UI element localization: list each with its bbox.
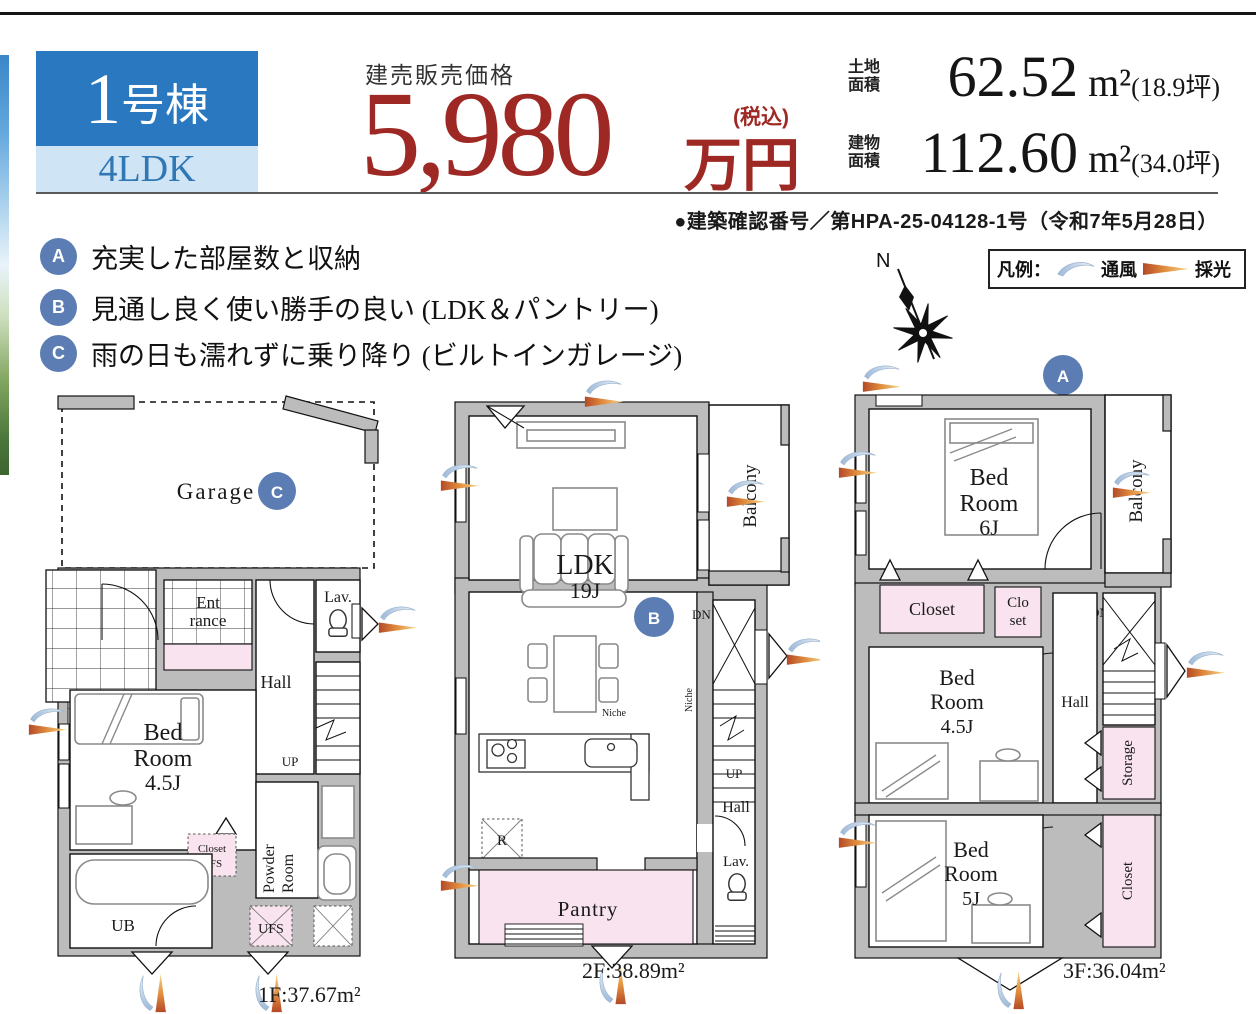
svg-text:Storage: Storage xyxy=(1120,740,1136,786)
garage-label: Garage xyxy=(177,479,255,504)
area-label-2f: 2F:38.89m² xyxy=(582,958,685,983)
marker-c: C xyxy=(258,472,296,510)
building-area-unit: m² xyxy=(1088,135,1131,182)
svg-text:Ent: Ent xyxy=(196,593,220,612)
building-area-tsubo: (34.0坪) xyxy=(1131,143,1220,180)
feature-c-text: 雨の日も濡れずに乗り降り (ビルトインガレージ) xyxy=(91,334,682,373)
svg-text:5J: 5J xyxy=(962,888,980,910)
bath-ub: UB xyxy=(70,854,212,948)
confirmation-number: ●建築確認番号／第HPA-25-04128-1号（令和7年5月28日） xyxy=(674,205,1218,234)
toilet-icon xyxy=(728,874,746,900)
tv-board xyxy=(517,422,625,448)
svg-text:A: A xyxy=(1057,367,1069,386)
feature-c-marker: C xyxy=(40,335,77,372)
floorplan-2f: Balcony LDK 19J B DN xyxy=(438,378,820,1012)
building-number-suffix: 号棟 xyxy=(121,84,209,128)
building-area-row: 建物 面積 112.60 m² (34.0坪) xyxy=(848,124,1220,182)
svg-text:Room: Room xyxy=(944,861,998,886)
svg-text:Lav.: Lav. xyxy=(723,854,749,870)
entry-door-mark xyxy=(248,952,288,974)
building-area-value: 112.60 xyxy=(888,124,1078,182)
svg-text:Room: Room xyxy=(134,746,193,772)
header-divider xyxy=(36,192,1218,194)
svg-text:Room: Room xyxy=(280,853,297,893)
svg-text:6J: 6J xyxy=(979,515,999,540)
svg-text:UFS: UFS xyxy=(258,922,284,937)
svg-text:UP: UP xyxy=(282,754,299,769)
svg-text:Bed: Bed xyxy=(953,837,988,862)
lavatory-1f: Lav. xyxy=(316,580,378,652)
svg-text:set: set xyxy=(1010,613,1027,629)
hall-1f: Hall xyxy=(256,580,314,774)
top-rule xyxy=(0,12,1256,15)
svg-text:Closet: Closet xyxy=(198,843,226,855)
wind-light-icon xyxy=(379,607,417,633)
wind-light-icon xyxy=(140,974,166,1012)
svg-text:Bed: Bed xyxy=(144,720,183,746)
feature-b-marker: B xyxy=(40,289,77,326)
floorplan-1f: Garage C Ent rance Hall Lav. xyxy=(28,388,420,1014)
svg-text:Balcony: Balcony xyxy=(740,464,761,528)
svg-text:C: C xyxy=(271,483,283,502)
svg-text:Room: Room xyxy=(960,491,1019,517)
bedroom-5j: Bed Room 5J xyxy=(869,815,1043,947)
svg-text:Closet: Closet xyxy=(909,599,955,619)
svg-text:UB: UB xyxy=(111,916,135,935)
ufs-box: UFS xyxy=(250,906,292,946)
plan-type-badge: 4LDK xyxy=(36,146,258,192)
refrigerator-space: R xyxy=(482,819,522,859)
dn-label: DN xyxy=(692,607,711,622)
marker-b: B xyxy=(634,597,674,637)
wind-light-icon xyxy=(863,366,901,392)
pantry: Pantry xyxy=(469,858,697,946)
svg-text:rance: rance xyxy=(190,611,227,630)
feature-a-text: 充実した部屋数と収納 xyxy=(91,237,361,276)
land-area-value: 62.52 xyxy=(888,48,1078,106)
land-area-tsubo: (18.9坪) xyxy=(1131,67,1220,104)
marker-a: A xyxy=(1043,355,1083,395)
wind-icon xyxy=(1056,260,1096,278)
svg-text:Hall: Hall xyxy=(722,799,750,816)
left-photo-sliver xyxy=(0,55,9,475)
svg-text:4.5J: 4.5J xyxy=(941,716,974,738)
building-area-label: 建物 面積 xyxy=(848,135,880,171)
area-label-1f: 1F:37.67m² xyxy=(258,982,361,1007)
svg-text:Hall: Hall xyxy=(261,672,292,692)
building-number: 1 xyxy=(85,63,121,135)
land-area-label: 土地 面積 xyxy=(848,59,880,95)
wind-light-icon xyxy=(1187,652,1225,678)
svg-text:B: B xyxy=(648,609,660,628)
low-table xyxy=(553,488,617,530)
building-number-badge: 1 号棟 xyxy=(36,51,258,146)
price-value: 5,980 xyxy=(360,74,610,196)
svg-text:Clo: Clo xyxy=(1007,595,1029,611)
compass-north-label: N xyxy=(876,250,890,272)
svg-text:Powder: Powder xyxy=(261,843,278,893)
legend-title: 凡例： xyxy=(997,256,1051,282)
svg-text:Room: Room xyxy=(930,689,984,714)
svg-text:4.5J: 4.5J xyxy=(145,770,182,795)
svg-text:Bed: Bed xyxy=(939,665,974,690)
garage: Garage xyxy=(58,396,378,568)
balcony-3f: Balcony xyxy=(1105,395,1171,587)
entry-door-mark xyxy=(132,952,172,974)
svg-text:Closet: Closet xyxy=(1120,861,1136,900)
bedroom-1f: Bed Room 4.5J xyxy=(70,690,256,850)
niche-label: Niche xyxy=(602,708,626,719)
legend-box: 凡例： 通風 採光 xyxy=(988,249,1246,289)
ldk-label: LDK xyxy=(556,550,614,581)
svg-text:Lav.: Lav. xyxy=(324,589,352,606)
svg-text:R: R xyxy=(497,833,507,849)
bedroom-45j: Bed Room 4.5J xyxy=(869,647,1043,803)
feature-a: A 充実した部屋数と収納 xyxy=(40,237,361,275)
balcony-2f: Balcony xyxy=(709,405,789,585)
price-unit: 万円 xyxy=(684,118,800,202)
area-label-3f: 3F:36.04m² xyxy=(1063,958,1166,983)
feature-c: C 雨の日も濡れずに乗り降り (ビルトインガレージ) xyxy=(40,334,682,372)
wind-light-icon xyxy=(787,639,820,665)
ldk-size-label: 19J xyxy=(570,578,601,603)
feature-b-text: 見通し良く使い勝手の良い (LDK＆パントリー) xyxy=(91,288,659,327)
bedroom-6j: Bed Room 6J xyxy=(869,409,1101,569)
feature-a-marker: A xyxy=(40,238,77,275)
niche-label-vertical: Niche xyxy=(684,688,695,712)
svg-text:Bed: Bed xyxy=(970,465,1009,491)
legend-light-label: 採光 xyxy=(1195,256,1231,282)
hatch-box xyxy=(314,906,352,946)
toilet-icon xyxy=(329,610,347,636)
stairs-3f xyxy=(1103,593,1155,725)
land-area-unit: m² xyxy=(1088,59,1131,106)
light-icon xyxy=(1142,262,1190,276)
svg-text:Hall: Hall xyxy=(1061,694,1089,711)
svg-text:UP: UP xyxy=(726,766,743,781)
svg-text:Pantry: Pantry xyxy=(558,897,619,921)
flyer-page: 1 号棟 4LDK 建売販売価格 5,980 (税込) 万円 土地 面積 62.… xyxy=(0,0,1256,1014)
legend-wind-label: 通風 xyxy=(1101,256,1137,282)
floorplan-3f: A Balcony Bed Room 6J xyxy=(836,353,1256,1014)
entrance: Ent rance xyxy=(164,580,252,670)
land-area-row: 土地 面積 62.52 m² (18.9坪) xyxy=(848,48,1220,106)
entry-door-mark xyxy=(958,958,1062,990)
feature-b: B 見通し良く使い勝手の良い (LDK＆パントリー) xyxy=(40,288,659,326)
